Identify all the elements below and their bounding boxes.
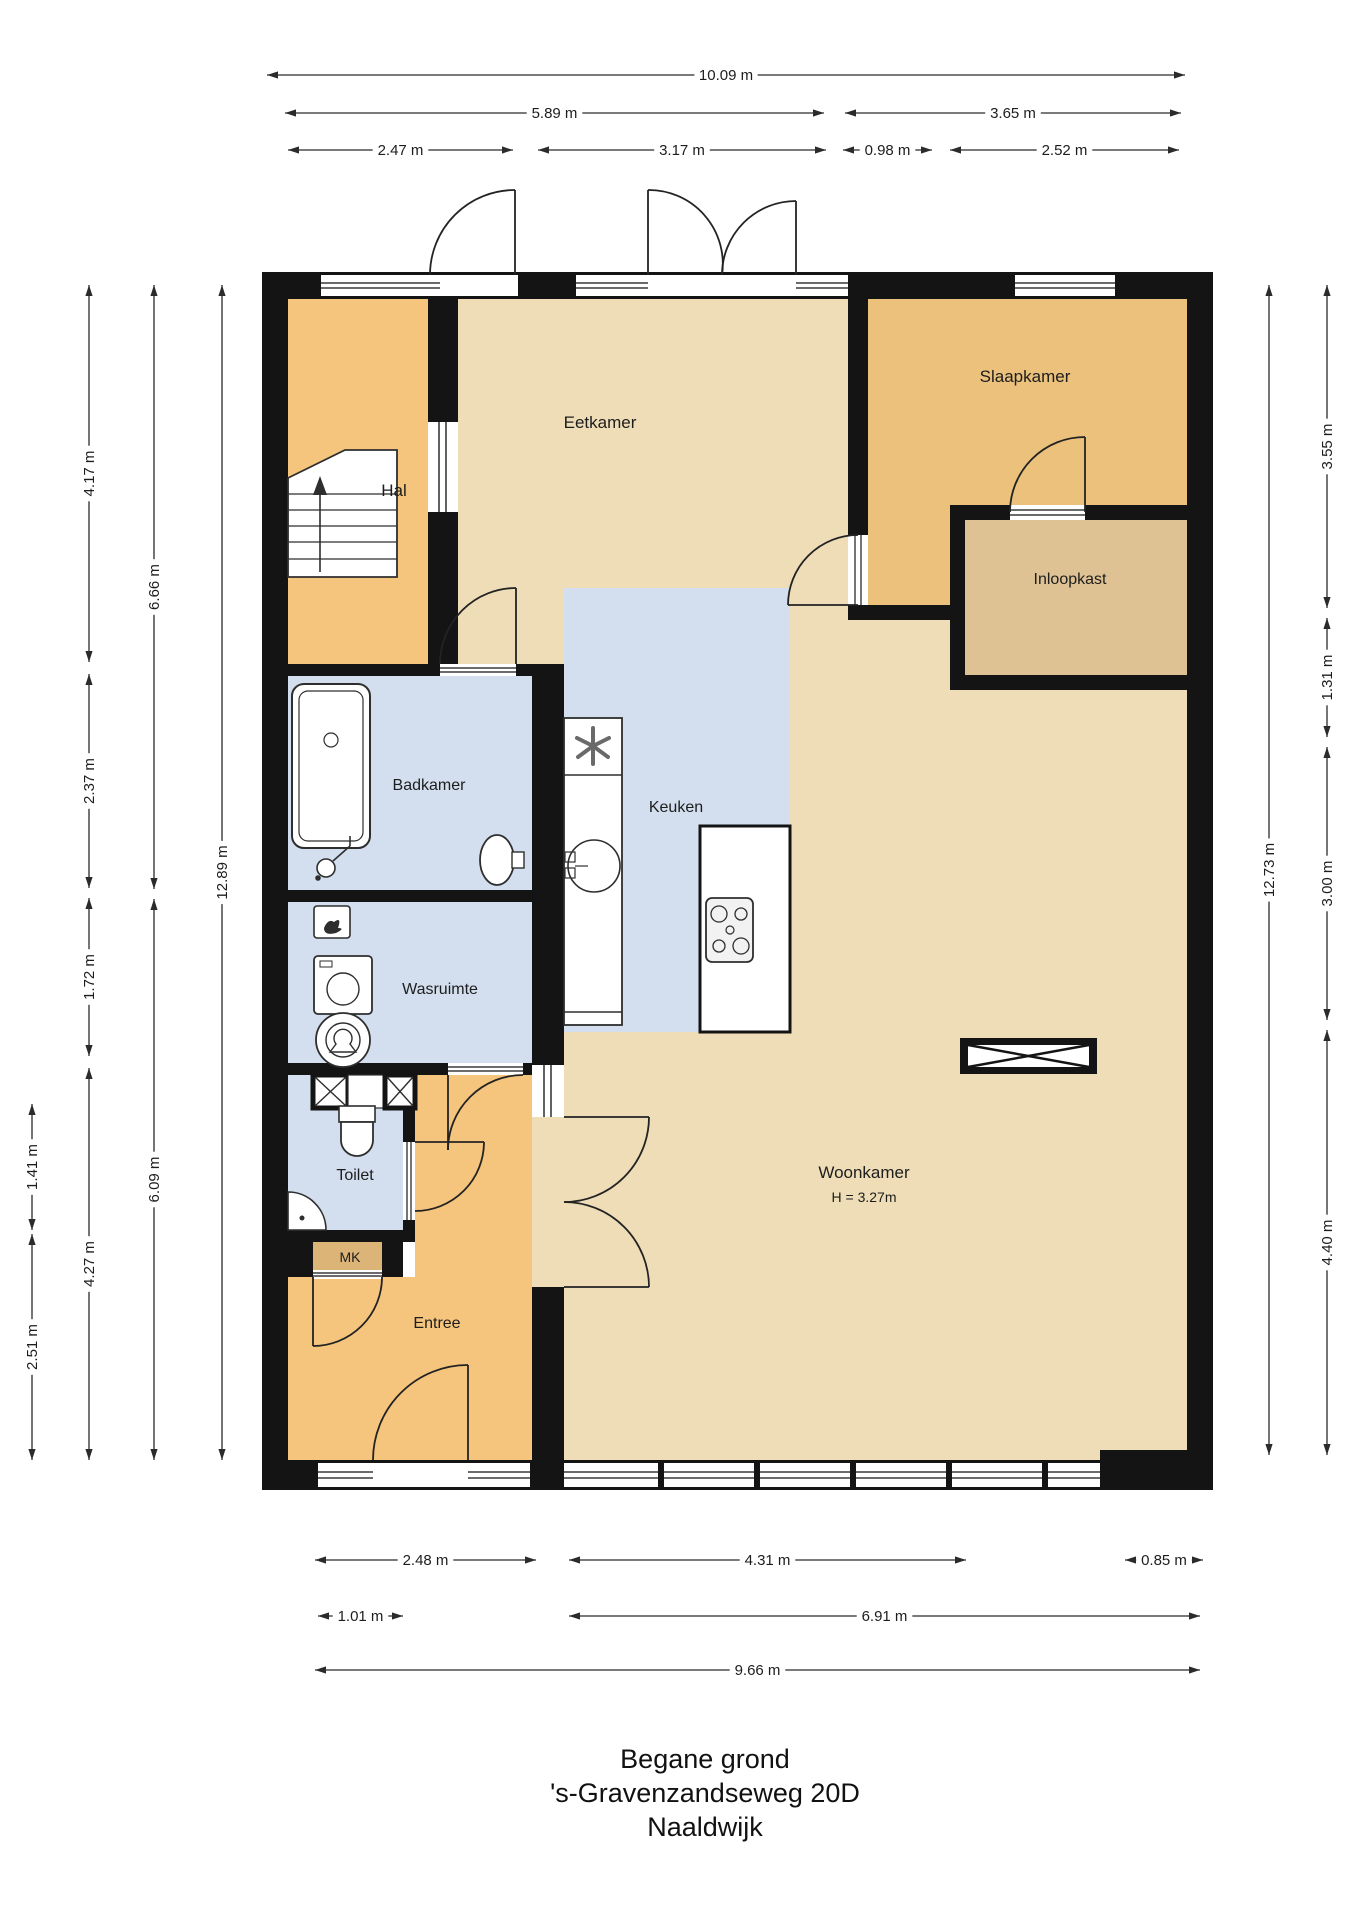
hal-front-door-opening [440,275,518,296]
dimension-2.48m: 2.48 m [315,1550,536,1570]
hal-eetkamer-glass [428,422,458,512]
svg-text:0.98 m: 0.98 m [865,142,911,159]
dimension-3.17m: 3.17 m [538,140,826,160]
dimension-12.73m: 12.73 m [1259,285,1279,1455]
svg-text:12.89 m: 12.89 m [214,845,231,899]
dimension-10.09m: 10.09 m [267,65,1185,85]
hob [706,898,753,962]
floorplan-page: HalEetkamerSlaapkamerInloopkastBadkamerK… [0,0,1358,1920]
floor-plan-svg: HalEetkamerSlaapkamerInloopkastBadkamerK… [0,0,1358,1920]
dimension-1.31m: 1.31 m [1317,618,1337,737]
svg-text:6.09 m: 6.09 m [146,1157,163,1203]
plan-title: Begane grond 's-Gravenzandseweg 20D Naal… [550,1744,860,1842]
svg-text:1.31 m: 1.31 m [1319,655,1336,701]
svg-text:2.48 m: 2.48 m [403,1552,449,1569]
svg-text:3.00 m: 3.00 m [1319,861,1336,907]
svg-text:3.65 m: 3.65 m [990,105,1036,122]
eetkamer-french-doors [648,190,796,275]
svg-text:5.89 m: 5.89 m [532,105,578,122]
title-address: 's-Gravenzandseweg 20D [550,1778,860,1808]
dimension-4.31m: 4.31 m [569,1550,966,1570]
radiator [960,1038,1097,1074]
dimension-9.66m: 9.66 m [315,1660,1200,1680]
svg-text:2.51 m: 2.51 m [24,1324,41,1370]
svg-text:1.72 m: 1.72 m [81,954,98,1000]
eetkamer-window-right [796,275,848,296]
dimension-12.89m: 12.89 m [212,285,232,1460]
svg-text:9.66 m: 9.66 m [735,1662,781,1679]
toilet-fixture [339,1106,375,1156]
dimension-0.98m: 0.98 m [843,140,932,160]
dimension-4.27m: 4.27 m [79,1068,99,1460]
eetkamer-doors-opening [648,275,796,296]
room-label-toilet: Toilet [336,1167,374,1184]
dimension-6.91m: 6.91 m [569,1606,1200,1626]
front-door-opening [373,1463,468,1487]
svg-text:6.66 m: 6.66 m [146,564,163,610]
inloopkast-floor [950,505,1187,690]
dimension-3.55m: 3.55 m [1317,285,1337,608]
svg-text:3.17 m: 3.17 m [659,142,705,159]
dimension-2.51m: 2.51 m [22,1234,42,1460]
svg-text:2.52 m: 2.52 m [1042,142,1088,159]
room-label-eetkamer: Eetkamer [564,413,637,432]
room-label-keuken: Keuken [649,799,703,816]
kitchen-counter [564,718,622,1025]
eetkamer-window-left [576,275,648,296]
dimension-6.09m: 6.09 m [144,899,164,1460]
svg-text:1.41 m: 1.41 m [24,1144,41,1190]
dimension-3.65m: 3.65 m [845,103,1181,123]
hal-window [316,275,440,296]
svg-text:3.55 m: 3.55 m [1319,424,1336,470]
dimension-1.72m: 1.72 m [79,898,99,1056]
dimension-2.52m: 2.52 m [950,140,1179,160]
room-label-mk: MK [340,1249,362,1265]
shaft-right [385,1075,415,1108]
dimension-5.89m: 5.89 m [285,103,824,123]
entree-window-right [468,1463,530,1487]
dimension-0.85m: 0.85 m [1125,1550,1203,1570]
entree-woonkamer-glass [532,1065,564,1117]
title-floor: Begane grond [620,1744,790,1774]
room-label-inloopkast: Inloopkast [1034,571,1107,588]
dimension-1.41m: 1.41 m [22,1104,42,1230]
kitchen-island [700,826,790,1032]
svg-text:10.09 m: 10.09 m [699,67,753,84]
slaapkamer-window [1010,275,1120,296]
svg-text:2.47 m: 2.47 m [378,142,424,159]
shaft-left [313,1075,348,1108]
room-label-slaapkamer: Slaapkamer [980,367,1071,386]
room-label-woonkamer: Woonkamer [818,1163,910,1182]
washing-machine [314,956,372,1014]
svg-text:1.01 m: 1.01 m [338,1608,384,1625]
stairs [288,450,397,577]
boiler [316,1013,370,1067]
svg-text:4.17 m: 4.17 m [81,451,98,497]
dimension-4.17m: 4.17 m [79,285,99,662]
water-heater-flame-icon [314,906,350,938]
room-label-wasruimte: Wasruimte [402,981,478,998]
room-label-entree: Entree [413,1315,460,1332]
niche [348,1075,385,1108]
dimension-4.40m: 4.40 m [1317,1030,1337,1455]
svg-text:2.37 m: 2.37 m [81,758,98,804]
dimension-3.00m: 3.00 m [1317,747,1337,1020]
svg-text:0.85 m: 0.85 m [1141,1552,1187,1569]
svg-text:4.27 m: 4.27 m [81,1241,98,1287]
title-city: Naaldwijk [647,1812,763,1842]
svg-text:6.91 m: 6.91 m [862,1608,908,1625]
dimension-6.66m: 6.66 m [144,285,164,889]
svg-text:4.31 m: 4.31 m [745,1552,791,1569]
room-height-note: H = 3.27m [832,1189,897,1205]
svg-text:4.40 m: 4.40 m [1319,1220,1336,1266]
room-label-hal: Hal [381,481,407,500]
woonkamer-window-band [564,1463,1100,1487]
dimension-2.47m: 2.47 m [288,140,513,160]
entree-window-left [318,1463,373,1487]
dimension-2.37m: 2.37 m [79,674,99,888]
svg-text:12.73 m: 12.73 m [1261,843,1278,897]
hal-exterior-door [430,190,515,275]
bathtub [292,684,370,848]
dimension-1.01m: 1.01 m [318,1606,403,1626]
room-label-badkamer: Badkamer [393,777,467,794]
